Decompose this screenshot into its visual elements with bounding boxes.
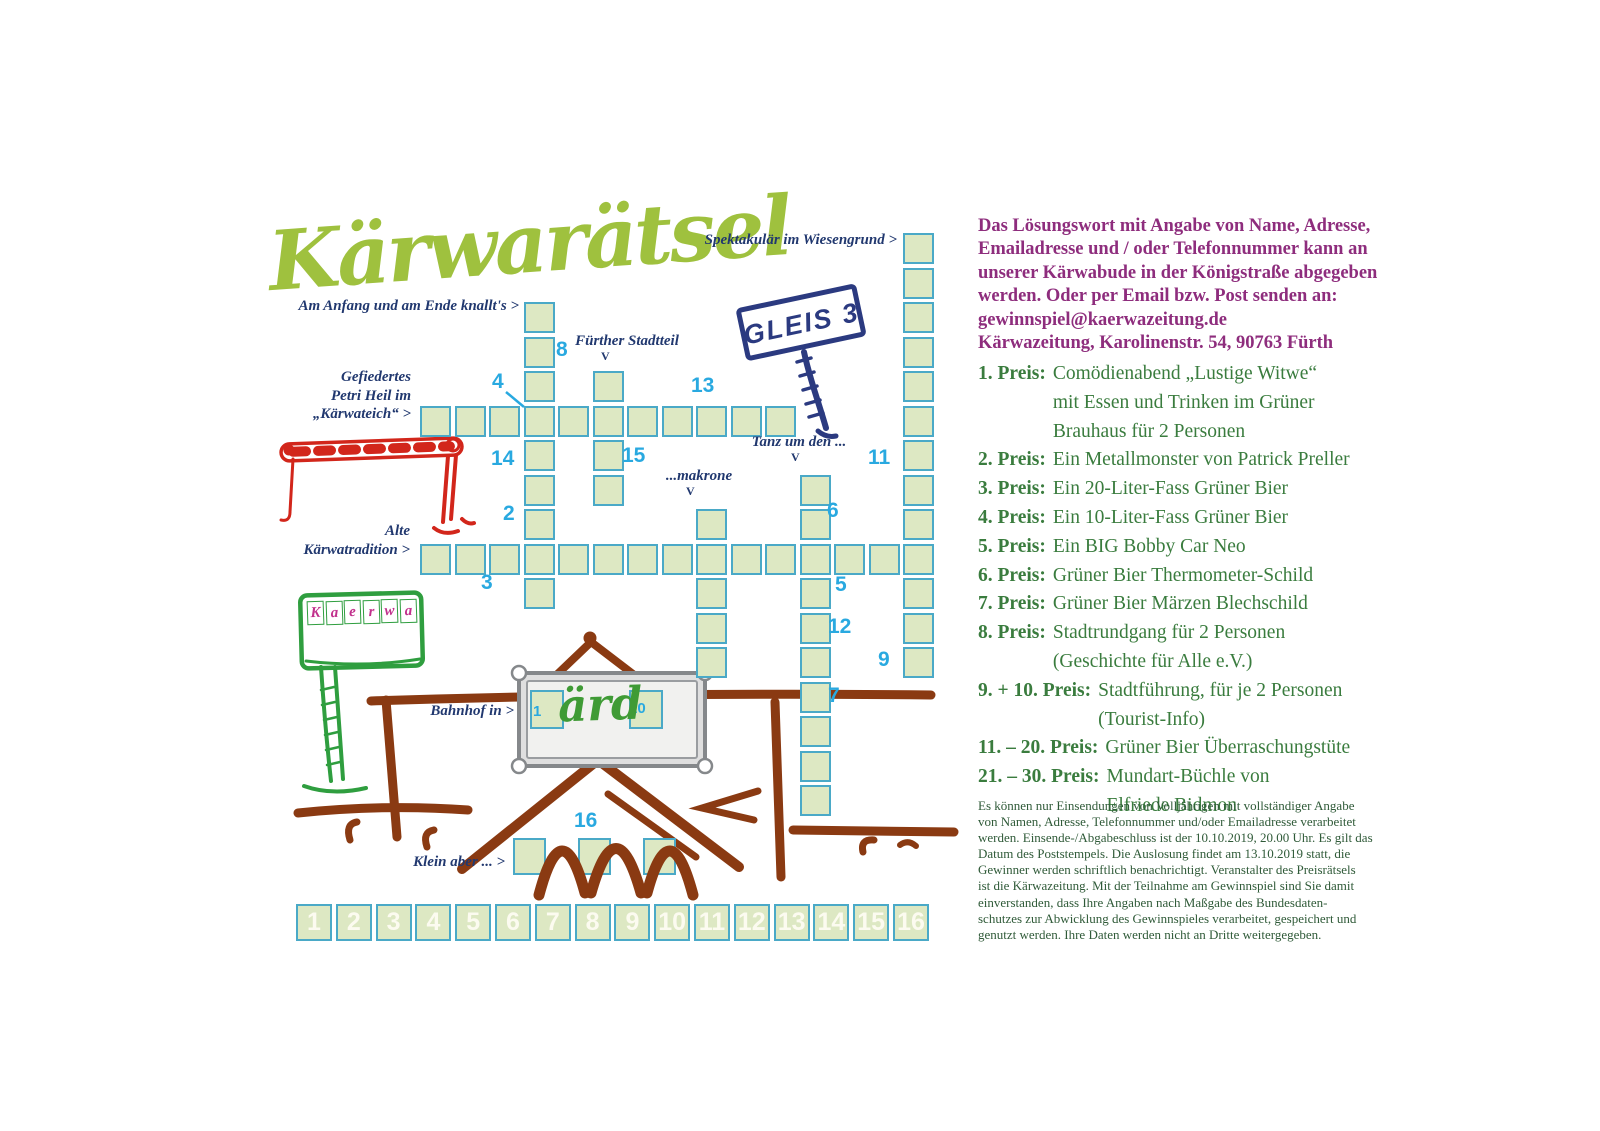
kaerwa-raetsel-page: GLEIS 3	[0, 0, 1600, 1131]
solution-letter-marker: 12	[828, 616, 851, 637]
kaerwa-letter-box: K	[307, 601, 325, 626]
submission-line: Emailadresse und / oder Telefonnummer ka…	[978, 238, 1377, 261]
prize-text: Grüner Bier Thermometer-Schild	[1053, 562, 1313, 591]
fine-print-line: werden. Einsende-/Abgabeschluss ist der …	[978, 830, 1373, 846]
prize-text: Stadtführung, für je 2 Personen(Tourist-…	[1098, 677, 1342, 735]
fine-print-line: schutzes zur Abwicklung des Gewinnspiele…	[978, 911, 1373, 927]
clue-fuerther-stadtteil: Fürther Stadtteil	[407, 332, 847, 351]
prize-text: Ein Metallmonster von Patrick Preller	[1053, 446, 1350, 475]
fine-print-line: von Namen, Adresse, Telefonnummer und/od…	[978, 814, 1373, 830]
prize-item: 9. + 10. Preis:Stadtführung, für je 2 Pe…	[978, 677, 1350, 735]
prize-label: 9. + 10. Preis:	[978, 677, 1091, 735]
prize-label: 5. Preis:	[978, 533, 1046, 562]
kaerwa-letter-box: a	[325, 600, 343, 625]
prize-item: 1. Preis:Comödienabend „Lustige Witwe“mi…	[978, 360, 1350, 446]
solution-letter-marker: 3	[481, 572, 493, 593]
solution-letter-marker: 5	[835, 574, 847, 595]
solution-letter-marker: 4	[492, 371, 504, 392]
solution-letter-marker: 7	[828, 685, 840, 706]
submission-line: Kärwazeitung, Karolinenstr. 54, 90763 Fü…	[978, 332, 1377, 355]
solution-letter-marker: 13	[691, 375, 714, 396]
prize-label: 3. Preis:	[978, 475, 1046, 504]
clue-arrow-v: V	[686, 484, 695, 499]
clue-spektakulaer: Spektakulär im Wiesengrund >	[705, 231, 897, 250]
prize-text: Ein 20-Liter-Fass Grüner Bier	[1053, 475, 1288, 504]
solution-letter-marker: 1	[533, 704, 541, 719]
kaerwa-letter-box: r	[362, 600, 380, 625]
prize-text: Grüner Bier Märzen Blechschild	[1053, 590, 1308, 619]
clue-arrow-v: V	[791, 450, 800, 465]
station-sign-text: ärd	[557, 677, 643, 733]
prize-text: Comödienabend „Lustige Witwe“mit Essen u…	[1053, 360, 1317, 446]
submission-line: unserer Kärwabude in der Königstraße abg…	[978, 262, 1377, 285]
clue-makrone: ...makrone	[479, 467, 919, 486]
prize-item: 3. Preis:Ein 20-Liter-Fass Grüner Bier	[978, 475, 1350, 504]
clue-bahnhof: Bahnhof in >	[430, 702, 514, 721]
clue-alte-tradition: AlteKärwatradition >	[304, 522, 411, 559]
fine-print-line: Gewinner werden schriftlich benachrichti…	[978, 862, 1373, 878]
prize-text: Stadtrundgang für 2 Personen(Geschichte …	[1053, 619, 1285, 677]
clue-knallts: Am Anfang und am Ende knallt's >	[298, 297, 519, 316]
submission-info: Das Lösungswort mit Angabe von Name, Adr…	[978, 215, 1377, 355]
prize-text: Ein 10-Liter-Fass Grüner Bier	[1053, 504, 1288, 533]
submission-line: Das Lösungswort mit Angabe von Name, Adr…	[978, 215, 1377, 238]
fine-print-line: Datum des Poststempels. Die Auslosung fi…	[978, 846, 1373, 862]
clue-gefiedertes: GefiedertesPetri Heil im„Kärwateich“ >	[313, 368, 411, 424]
kaerwa-letter-box: e	[344, 600, 362, 625]
prize-item: 4. Preis:Ein 10-Liter-Fass Grüner Bier	[978, 504, 1350, 533]
prize-label: 11. – 20. Preis:	[978, 734, 1098, 763]
kaerwa-letter-box: w	[381, 599, 399, 624]
submission-line: gewinnspiel@kaerwazeitung.de	[978, 309, 1377, 332]
labels-layer: Kärwarätsel ärd Das Lösungswort mit Anga…	[0, 0, 1600, 1131]
fine-print-line: ist die Kärwazeitung. Mit der Teilnahme …	[978, 878, 1373, 894]
solution-letter-marker: 2	[503, 503, 515, 524]
clue-arrow-v: V	[601, 349, 610, 364]
fine-print-line: einverstanden, dass Ihre Angaben nach Ma…	[978, 895, 1373, 911]
submission-line: werden. Oder per Email bzw. Post senden …	[978, 285, 1377, 308]
prize-item: 7. Preis:Grüner Bier Märzen Blechschild	[978, 590, 1350, 619]
fine-print: Es können nur Einsendungen von Volljähri…	[978, 798, 1373, 943]
solution-letter-marker: 6	[827, 500, 839, 521]
prize-label: 6. Preis:	[978, 562, 1046, 591]
solution-letter-marker: 14	[491, 448, 514, 469]
prize-item: 5. Preis:Ein BIG Bobby Car Neo	[978, 533, 1350, 562]
prize-label: 7. Preis:	[978, 590, 1046, 619]
prize-label: 4. Preis:	[978, 504, 1046, 533]
prize-text: Ein BIG Bobby Car Neo	[1053, 533, 1246, 562]
clue-klein-aber: Klein aber ... >	[413, 853, 505, 872]
solution-letter-marker: 9	[878, 649, 890, 670]
clue-tanz: Tanz um den ...	[579, 433, 1019, 452]
prize-item: 2. Preis:Ein Metallmonster von Patrick P…	[978, 446, 1350, 475]
kaerwa-letter-box: a	[400, 599, 418, 624]
prize-item: 8. Preis:Stadtrundgang für 2 Personen(Ge…	[978, 619, 1350, 677]
prize-item: 6. Preis:Grüner Bier Thermometer-Schild	[978, 562, 1350, 591]
prize-label: 8. Preis:	[978, 619, 1046, 677]
fine-print-line: Es können nur Einsendungen von Volljähri…	[978, 798, 1373, 814]
solution-letter-marker: 16	[574, 810, 597, 831]
fine-print-line: genutzt werden. Ihre Daten werden nicht …	[978, 927, 1373, 943]
prize-list: 1. Preis:Comödienabend „Lustige Witwe“mi…	[978, 360, 1350, 821]
prize-item: 11. – 20. Preis:Grüner Bier Überraschung…	[978, 734, 1350, 763]
prize-text: Grüner Bier Überraschungstüte	[1105, 734, 1350, 763]
